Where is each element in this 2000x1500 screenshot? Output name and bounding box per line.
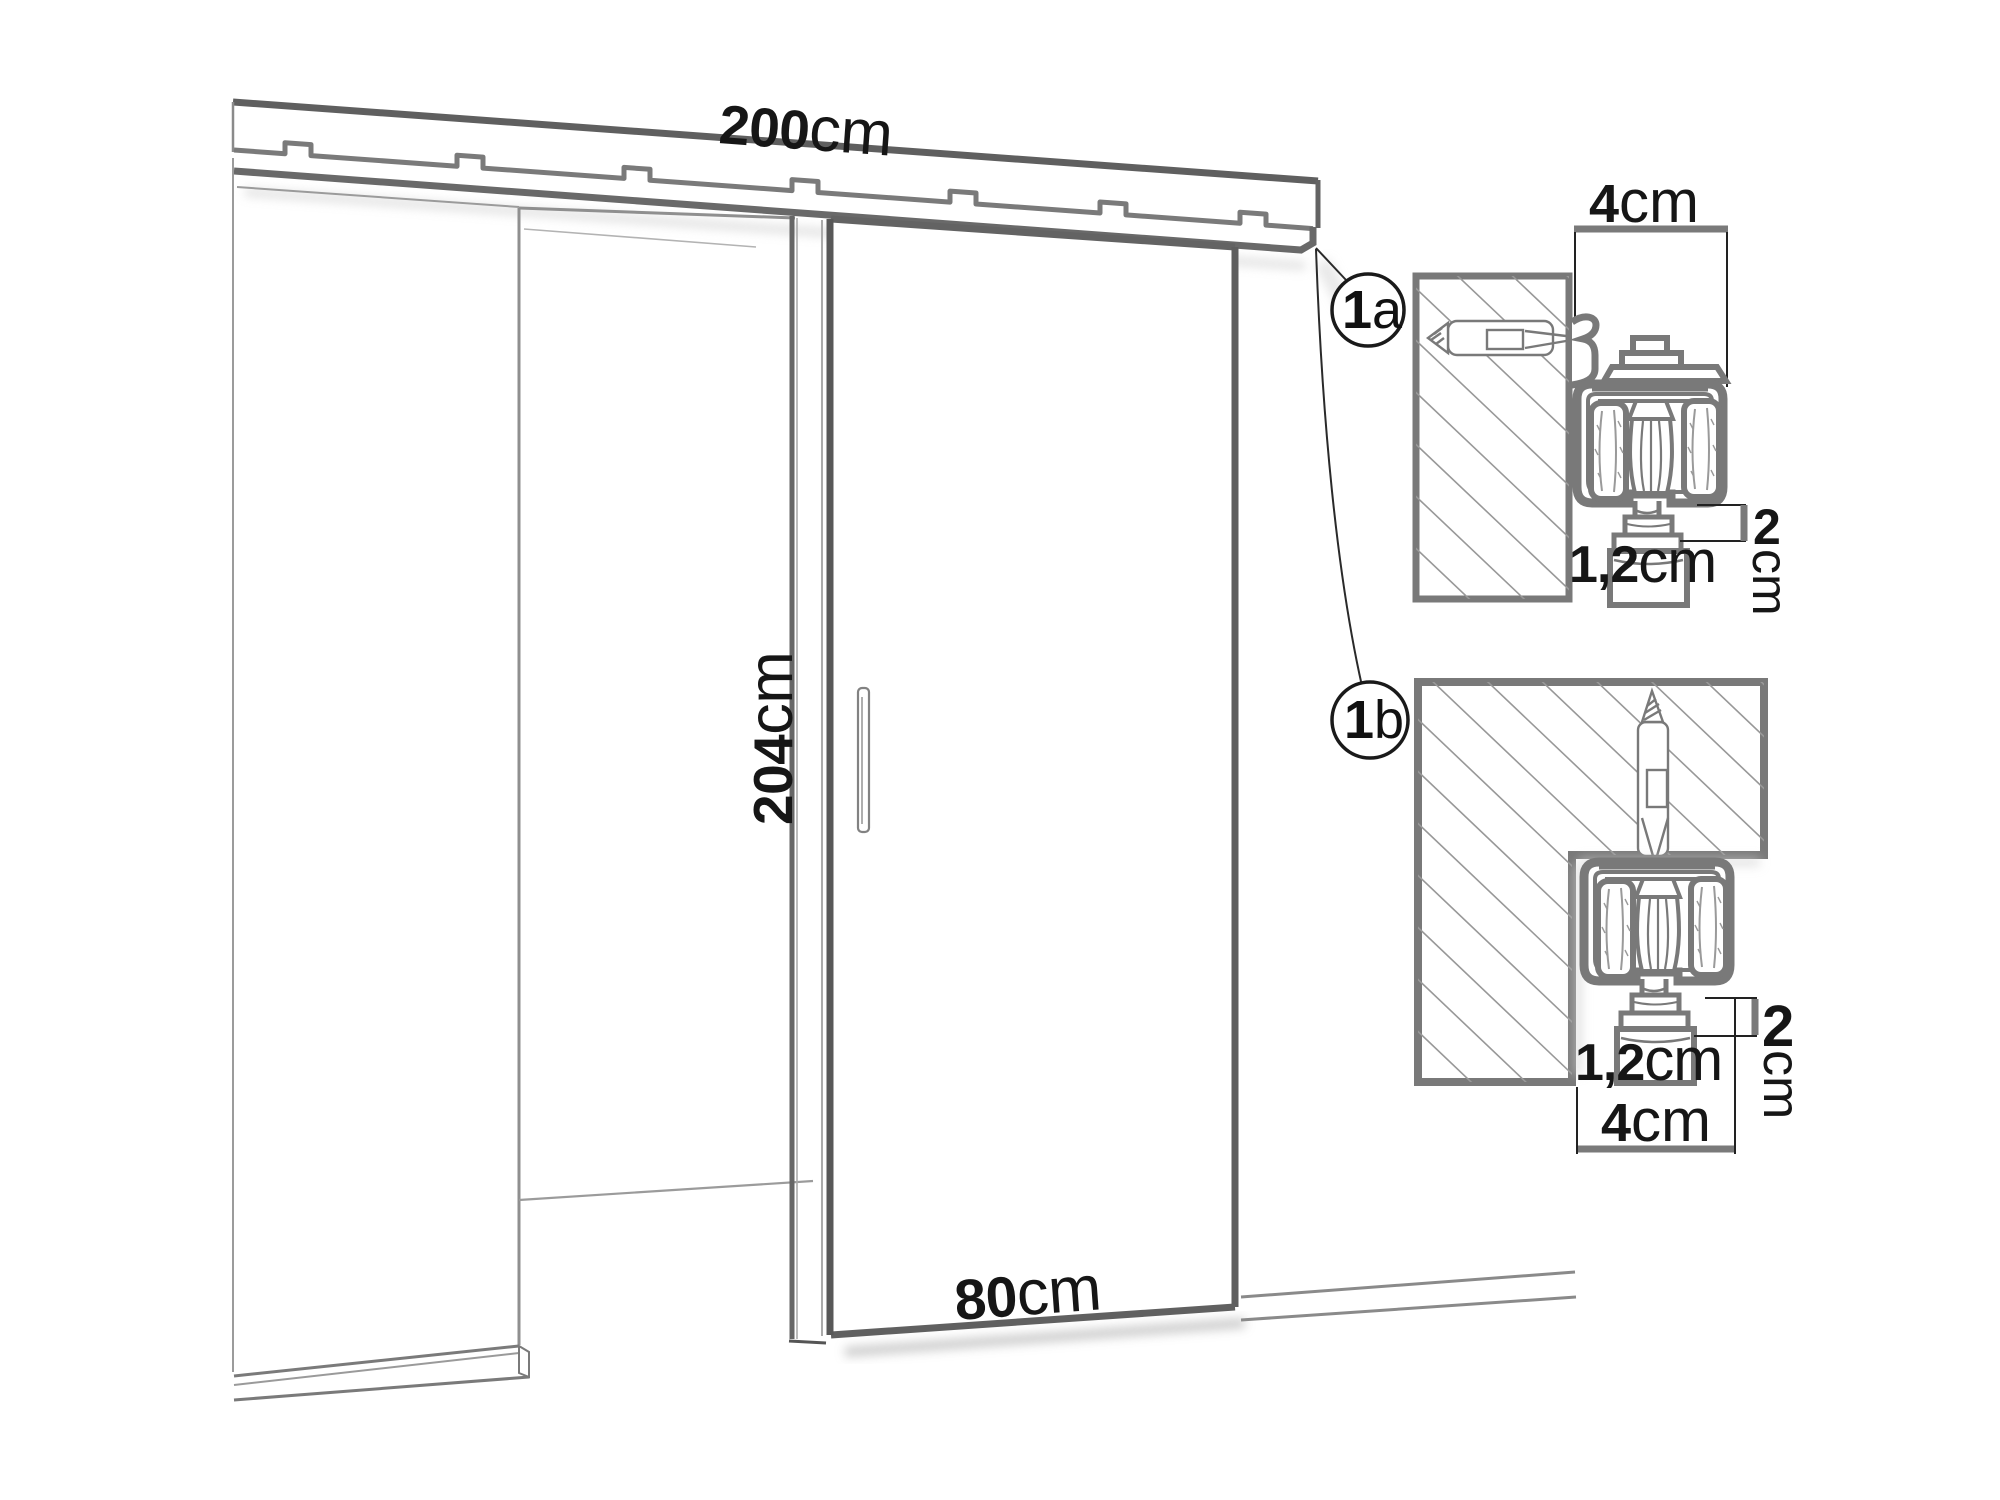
- svg-text:1,2cm: 1,2cm: [1575, 1026, 1722, 1093]
- svg-text:cm: cm: [1752, 1050, 1810, 1119]
- svg-text:cm: cm: [1742, 549, 1798, 616]
- svg-text:204cm: 204cm: [736, 652, 806, 825]
- svg-text:4cm: 4cm: [1601, 1087, 1711, 1154]
- svg-text:1b: 1b: [1344, 690, 1404, 750]
- svg-text:2: 2: [1753, 499, 1781, 555]
- svg-text:1a: 1a: [1342, 280, 1403, 340]
- svg-text:4cm: 4cm: [1589, 168, 1699, 235]
- svg-text:1,2cm: 1,2cm: [1569, 528, 1716, 595]
